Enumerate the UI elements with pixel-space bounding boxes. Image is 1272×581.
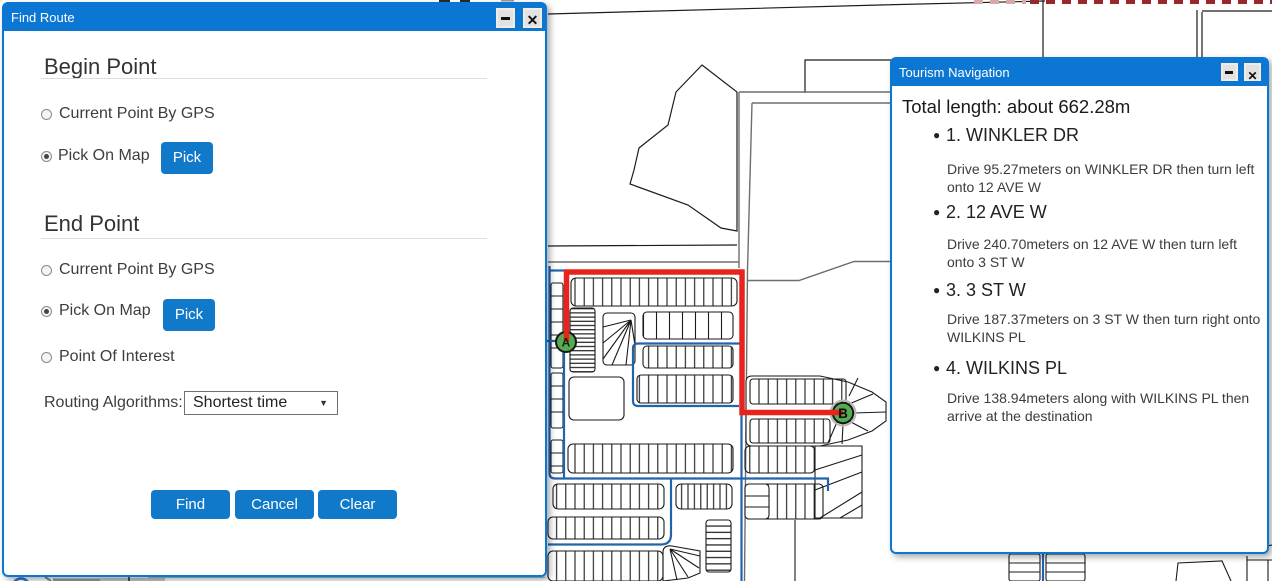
- svg-text:B: B: [838, 406, 848, 421]
- svg-text:A: A: [562, 336, 571, 350]
